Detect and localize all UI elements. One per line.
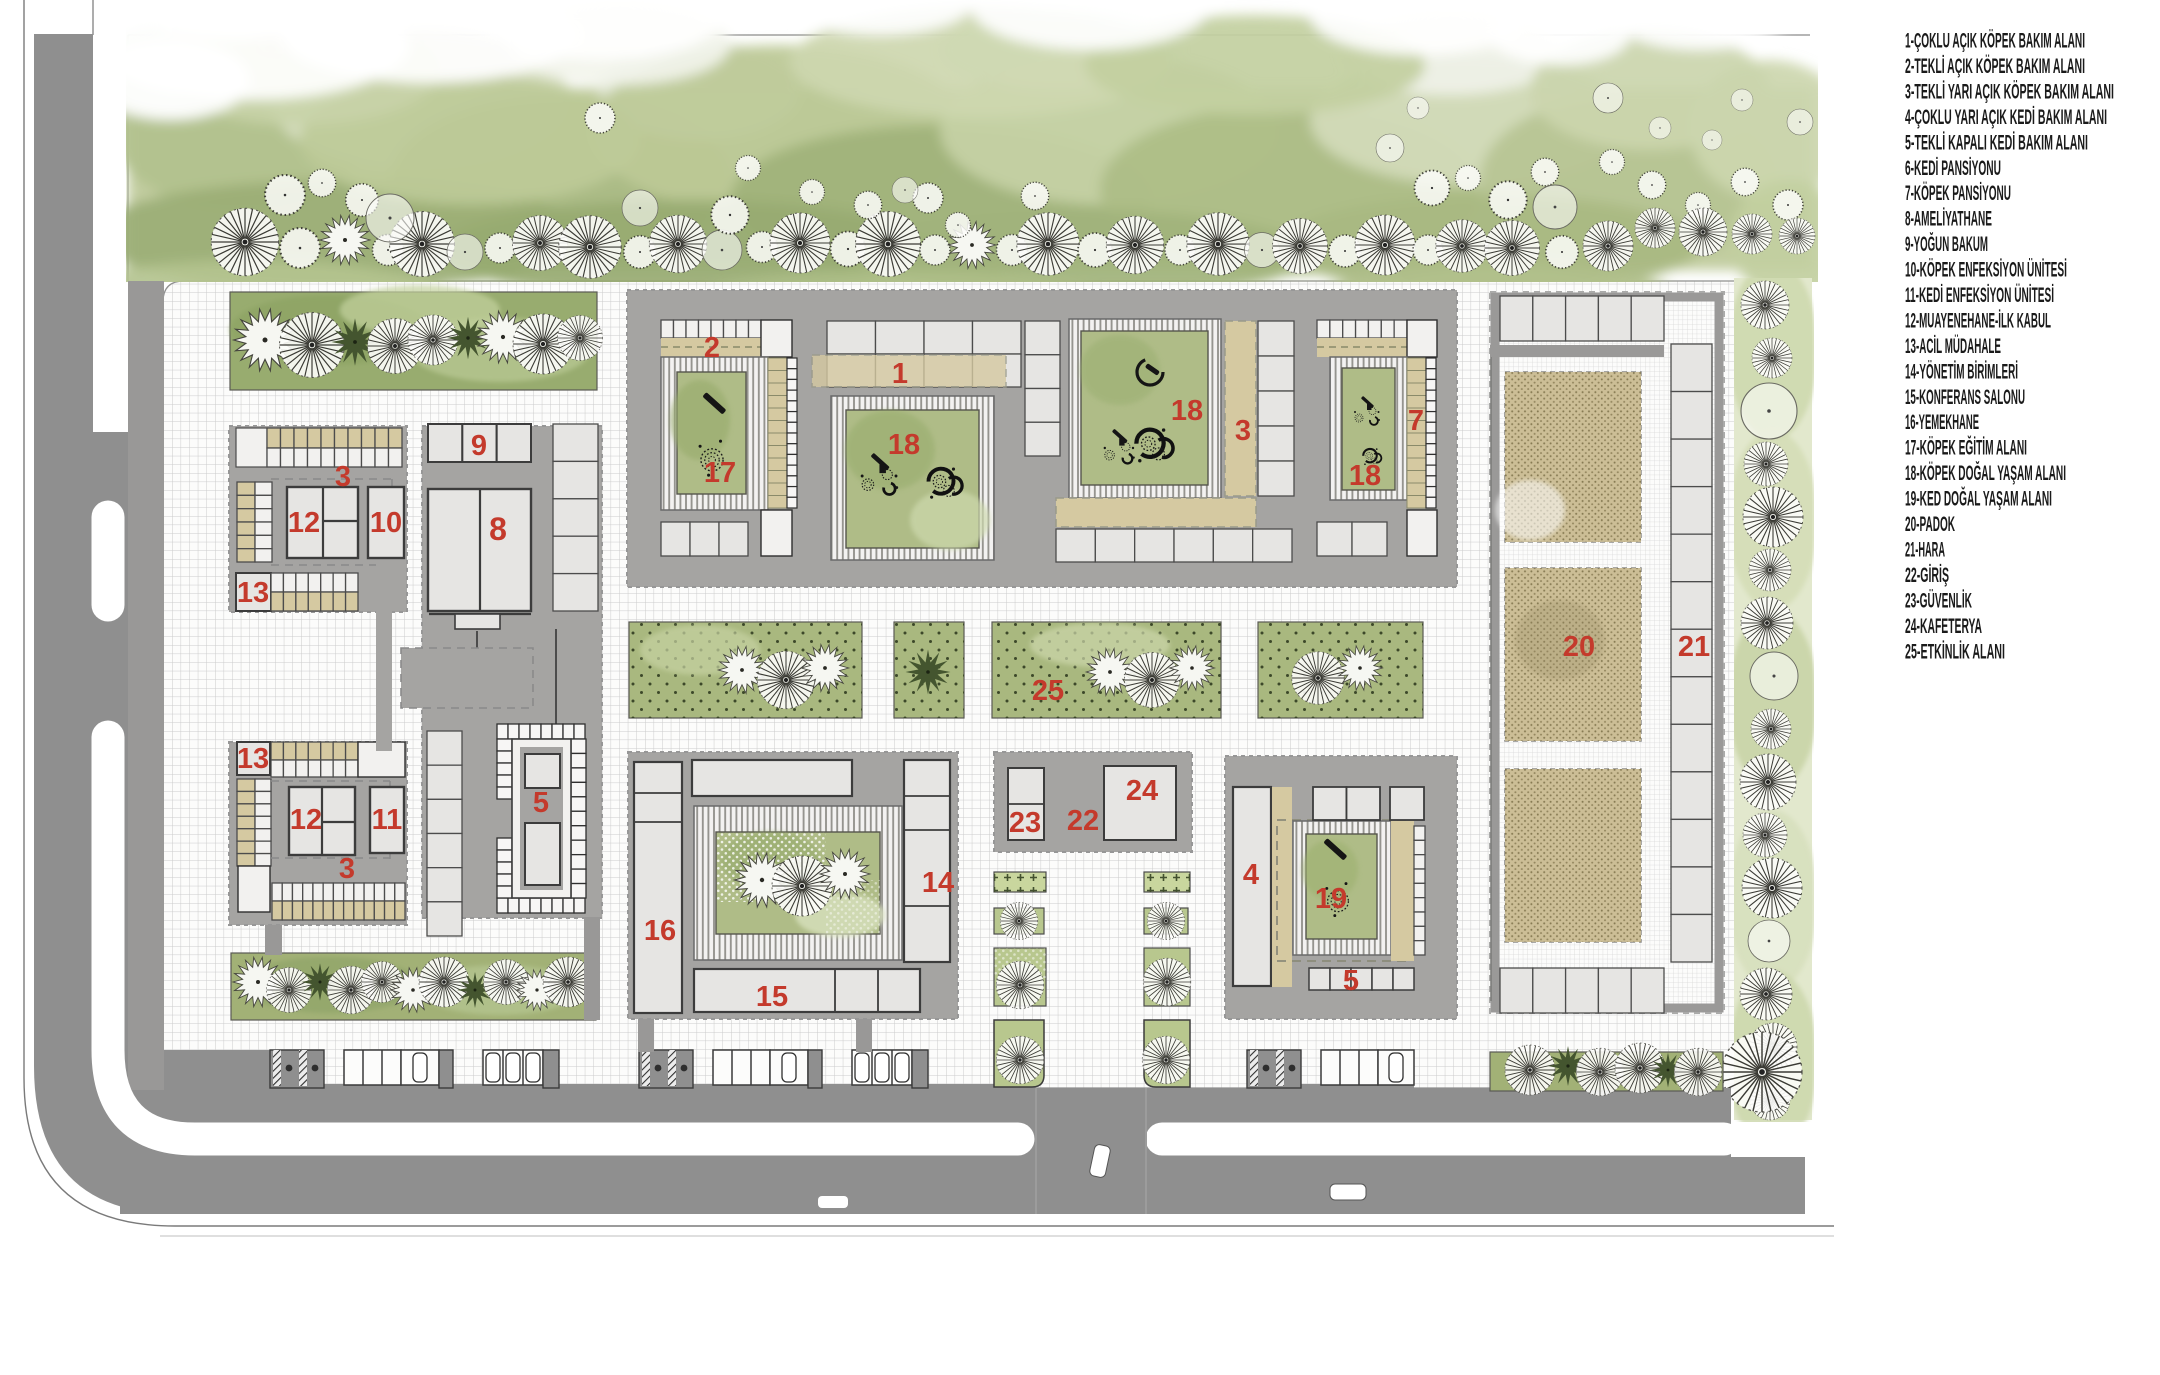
svg-text:5: 5 <box>1343 965 1359 997</box>
svg-text:5-TEKLİ KAPALI KEDİ BAKIM ALAN: 5-TEKLİ KAPALI KEDİ BAKIM ALANI <box>1905 130 2088 154</box>
svg-text:2-TEKLİ AÇIK KÖPEK BAKIM ALANI: 2-TEKLİ AÇIK KÖPEK BAKIM ALANI <box>1905 53 2085 78</box>
svg-text:4-ÇOKLU YARI AÇIK KEDİ BAKIM A: 4-ÇOKLU YARI AÇIK KEDİ BAKIM ALANI <box>1905 105 2107 129</box>
svg-text:7-KÖPEK PANSİYONU: 7-KÖPEK PANSİYONU <box>1905 180 2011 205</box>
svg-text:14: 14 <box>922 867 954 899</box>
svg-text:25-ETKİNLİK ALANI: 25-ETKİNLİK ALANI <box>1905 639 2005 663</box>
svg-text:13: 13 <box>237 577 269 609</box>
svg-text:1-ÇOKLU AÇIK KÖPEK BAKIM ALANI: 1-ÇOKLU AÇIK KÖPEK BAKIM ALANI <box>1905 28 2085 53</box>
svg-text:3: 3 <box>1235 415 1251 447</box>
svg-text:17-KÖPEK EĞİTİM ALANI: 17-KÖPEK EĞİTİM ALANI <box>1905 435 2027 460</box>
svg-text:19: 19 <box>1315 883 1347 915</box>
svg-text:8-AMELİYATHANE: 8-AMELİYATHANE <box>1905 207 1992 231</box>
svg-text:18: 18 <box>1349 460 1381 492</box>
svg-text:3-TEKLİ YARI AÇIK KÖPEK BAKIM: 3-TEKLİ YARI AÇIK KÖPEK BAKIM ALANI <box>1905 78 2114 103</box>
svg-text:9-YOĞUN BAKUM: 9-YOĞUN BAKUM <box>1905 231 1988 256</box>
svg-text:3: 3 <box>335 461 351 493</box>
svg-text:17: 17 <box>704 457 736 489</box>
svg-text:12: 12 <box>290 804 322 836</box>
svg-text:1: 1 <box>892 358 908 390</box>
svg-text:8: 8 <box>489 511 507 547</box>
svg-text:16: 16 <box>644 915 676 947</box>
svg-text:23-GÜVENLİK: 23-GÜVENLİK <box>1905 587 1972 612</box>
svg-text:13: 13 <box>237 743 269 775</box>
svg-text:14-YÖNETİM BİRİMLERİ: 14-YÖNETİM BİRİMLERİ <box>1905 358 2018 383</box>
svg-text:12-MUAYENEHANE-İLK KABUL: 12-MUAYENEHANE-İLK KABUL <box>1905 308 2051 332</box>
svg-text:3: 3 <box>339 853 355 885</box>
svg-text:18-KÖPEK DOĞAL YAŞAM ALANI: 18-KÖPEK DOĞAL YAŞAM ALANI <box>1905 460 2066 485</box>
svg-text:20-PADOK: 20-PADOK <box>1905 512 1955 536</box>
svg-text:15-KONFERANS SALONU: 15-KONFERANS SALONU <box>1905 385 2025 409</box>
svg-text:23: 23 <box>1009 807 1041 839</box>
svg-text:4: 4 <box>1243 859 1259 891</box>
svg-text:6-KEDİ PANSİYONU: 6-KEDİ PANSİYONU <box>1905 156 2001 180</box>
svg-text:15: 15 <box>756 981 788 1013</box>
svg-text:21: 21 <box>1678 631 1710 663</box>
svg-text:11: 11 <box>372 804 403 836</box>
svg-text:22-GİRİŞ: 22-GİRİŞ <box>1905 563 1949 587</box>
svg-text:7: 7 <box>1408 405 1424 437</box>
svg-text:18: 18 <box>888 429 920 461</box>
svg-text:13-ACİL MÜDAHALE: 13-ACİL MÜDAHALE <box>1905 333 2001 358</box>
svg-text:20: 20 <box>1563 631 1595 663</box>
svg-text:24: 24 <box>1126 775 1158 807</box>
svg-text:5: 5 <box>533 787 549 819</box>
svg-text:24-KAFETERYA: 24-KAFETERYA <box>1905 614 1982 638</box>
svg-text:18: 18 <box>1171 395 1203 427</box>
svg-text:12: 12 <box>288 507 320 539</box>
svg-text:10: 10 <box>370 507 402 539</box>
svg-text:10-KÖPEK ENFEKSİYON ÜNİTESİ: 10-KÖPEK ENFEKSİYON ÜNİTESİ <box>1905 257 2067 282</box>
svg-text:22: 22 <box>1067 805 1099 837</box>
svg-text:25: 25 <box>1032 675 1064 707</box>
svg-text:16-YEMEKHANE: 16-YEMEKHANE <box>1905 410 1979 434</box>
svg-text:11-KEDİ ENFEKSİYON ÜNİTESİ: 11-KEDİ ENFEKSİYON ÜNİTESİ <box>1905 282 2054 307</box>
svg-text:21-HARA: 21-HARA <box>1905 538 1945 562</box>
svg-text:2: 2 <box>704 332 720 364</box>
svg-text:19-KED DOĞAL YAŞAM ALANI: 19-KED DOĞAL YAŞAM ALANI <box>1905 486 2052 511</box>
svg-text:9: 9 <box>471 430 487 462</box>
